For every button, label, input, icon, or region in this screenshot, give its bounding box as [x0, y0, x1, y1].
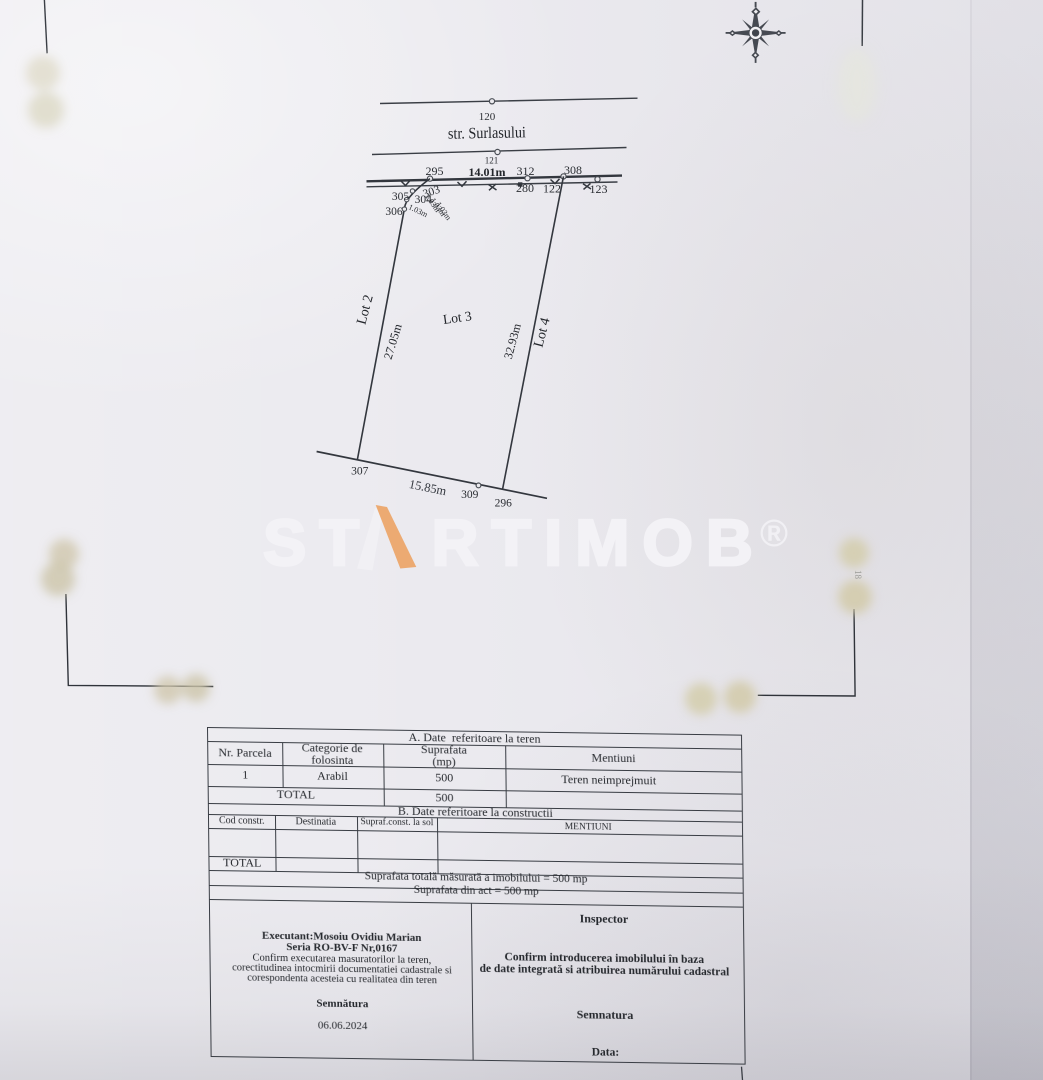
svg-text:15.85m: 15.85m — [408, 477, 448, 498]
svg-text:295: 295 — [426, 164, 444, 178]
svg-text:14.01m: 14.01m — [469, 165, 506, 179]
svg-text:280: 280 — [516, 181, 534, 195]
svg-text:305: 305 — [392, 191, 410, 203]
svg-text:309: 309 — [461, 489, 479, 501]
svg-text:18: 18 — [853, 570, 863, 580]
svg-text:120: 120 — [479, 111, 496, 123]
svg-text:123: 123 — [590, 182, 608, 196]
svg-text:Lot 3: Lot 3 — [442, 308, 473, 327]
svg-text:Lot 2: Lot 2 — [355, 293, 377, 326]
svg-text:122: 122 — [543, 181, 561, 195]
svg-text:str. Surlasului: str. Surlasului — [448, 124, 527, 142]
svg-text:306: 306 — [385, 206, 403, 218]
svg-text:296: 296 — [495, 497, 513, 509]
svg-text:308: 308 — [564, 163, 582, 177]
svg-text:121: 121 — [485, 156, 499, 166]
svg-text:32.93m: 32.93m — [501, 321, 524, 360]
svg-text:307: 307 — [351, 466, 369, 478]
svg-text:27.05m: 27.05m — [381, 321, 405, 360]
